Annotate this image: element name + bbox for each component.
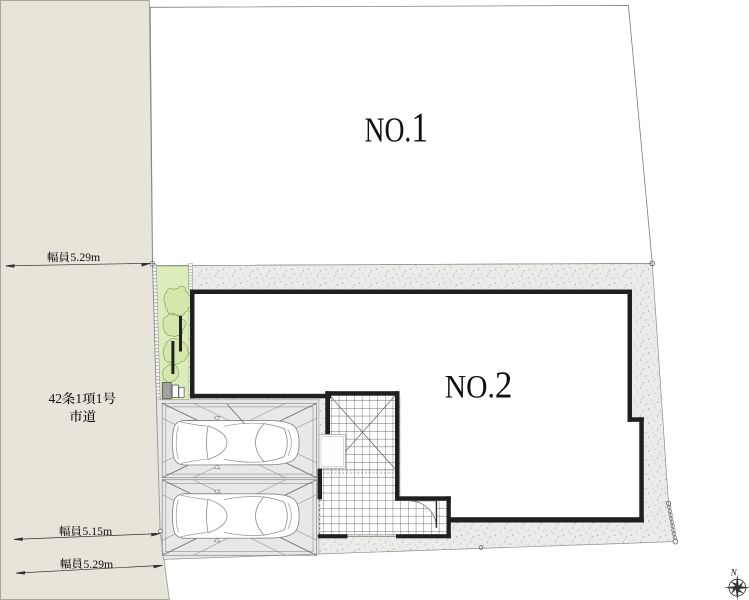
svg-text:5.15m: 5.15m xyxy=(82,524,112,538)
svg-text:42: 42 xyxy=(49,391,63,406)
svg-text:5.29m: 5.29m xyxy=(83,557,113,571)
svg-text:N: N xyxy=(730,568,738,578)
svg-text:NO.1: NO.1 xyxy=(365,105,429,152)
svg-text:NO.2: NO.2 xyxy=(445,363,513,406)
svg-text:1: 1 xyxy=(75,391,82,406)
svg-text:5.29m: 5.29m xyxy=(70,250,100,264)
svg-text:1: 1 xyxy=(96,391,103,406)
